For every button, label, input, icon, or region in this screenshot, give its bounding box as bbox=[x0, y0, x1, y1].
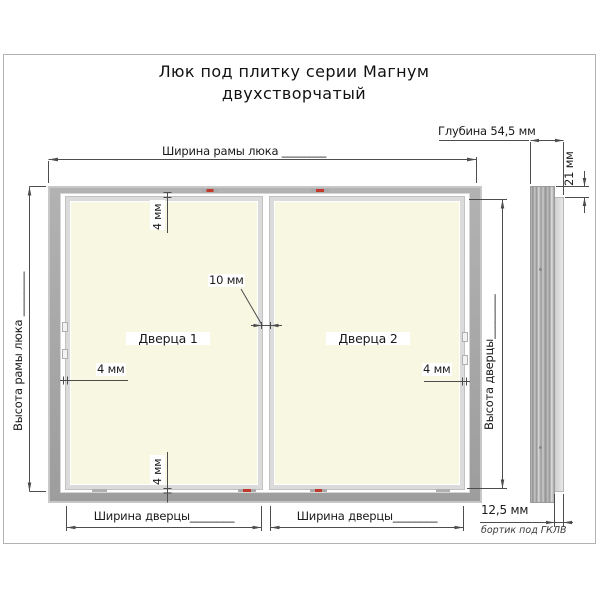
hinge-left-lower bbox=[62, 349, 68, 359]
door-1-label: Дверца 1 bbox=[126, 332, 210, 345]
dim-door-width-right-label: Ширина дверцы________ bbox=[270, 510, 464, 523]
dim-10mm-label: 10 мм bbox=[208, 274, 245, 287]
dim-4mm-bottom-label: 4 мм bbox=[150, 455, 165, 485]
dim-rim-12-5mm-label: 12,5 мм bbox=[481, 504, 528, 517]
rim-note-label: бортик под ГКЛВ bbox=[481, 524, 566, 537]
latch-top-door2 bbox=[311, 189, 329, 192]
latch-bottom-right bbox=[436, 489, 450, 492]
latch-bottom-door2 bbox=[310, 489, 327, 492]
technical-drawing: Люк под плитку серии Магнум двухстворчат… bbox=[0, 0, 600, 600]
hinge-left-upper bbox=[62, 322, 68, 332]
dim-21mm-label: 21 мм bbox=[563, 142, 576, 186]
hinge-right-lower bbox=[462, 355, 468, 365]
door-2-label: Дверца 2 bbox=[326, 332, 410, 345]
dim-depth-label: Глубина 54,5 мм bbox=[438, 125, 536, 138]
latch-bottom-left bbox=[92, 489, 107, 492]
screw-dot-lower bbox=[539, 446, 542, 449]
dim-4mm-left-label: 4 мм bbox=[96, 363, 126, 376]
dim-4mm-right-label: 4 мм bbox=[422, 363, 452, 376]
dim-frame-width-label: Ширина рамы люка ________ bbox=[162, 145, 326, 158]
title-line-1: Люк под плитку серии Магнум bbox=[94, 61, 494, 83]
latch-top-door1 bbox=[202, 189, 218, 192]
screw-dot-upper bbox=[539, 268, 542, 271]
side-view-profile bbox=[530, 186, 555, 503]
dim-4mm-top-label: 4 мм bbox=[150, 200, 165, 230]
drawing-title: Люк под плитку серии Магнум двухстворчат… bbox=[94, 61, 494, 105]
dim-door-height-label: Высота дверцы________ bbox=[483, 262, 496, 462]
title-line-2: двухстворчатый bbox=[94, 83, 494, 105]
dim-door-width-left-label: Ширина дверцы________ bbox=[66, 510, 262, 523]
hinge-right-upper bbox=[462, 332, 468, 342]
latch-bottom-door1 bbox=[238, 489, 256, 492]
side-view-drywall-rim bbox=[555, 197, 564, 492]
dim-frame-height-label: Высота рамы люка ________ bbox=[12, 258, 25, 444]
